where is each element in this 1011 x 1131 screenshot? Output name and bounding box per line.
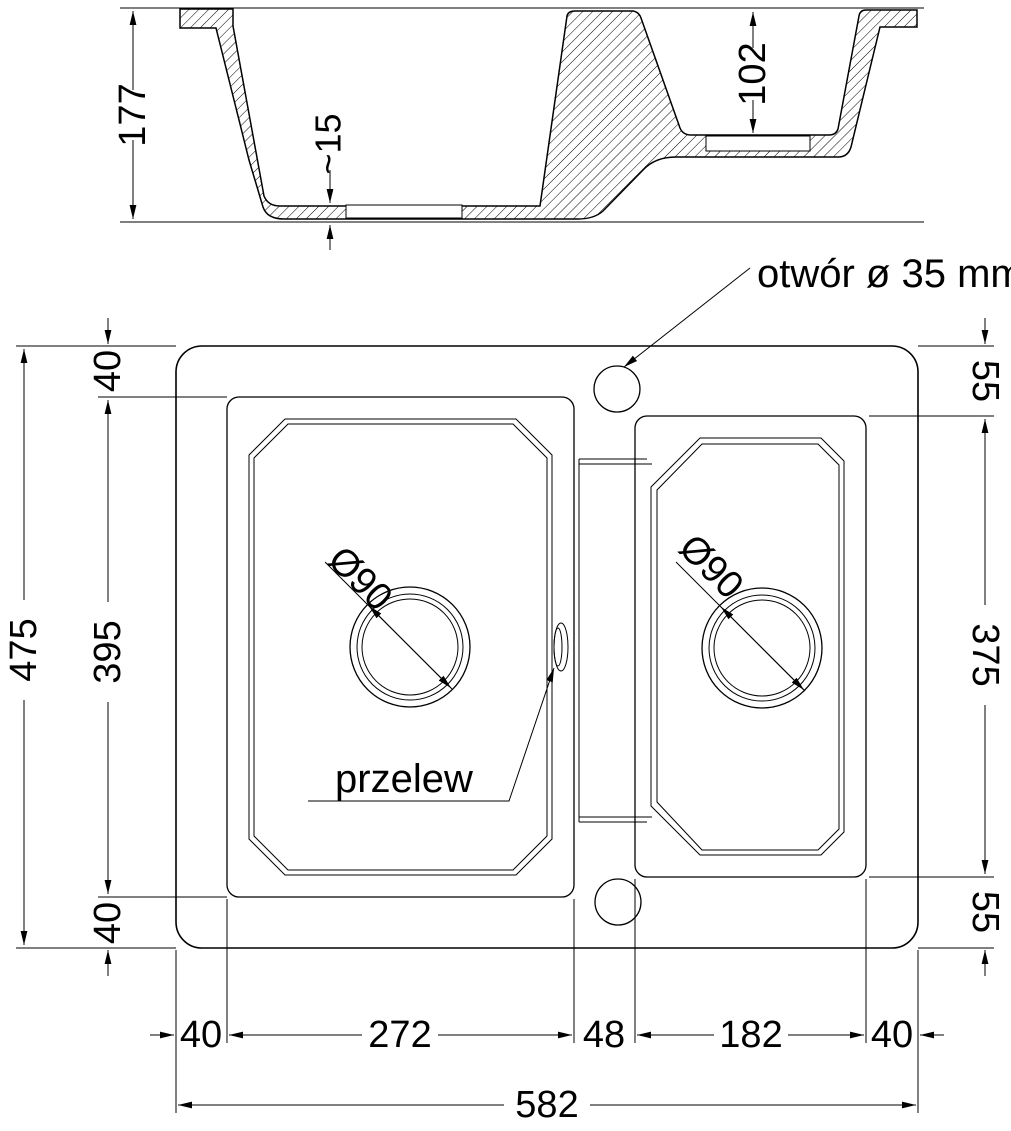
extension-lines [16,346,994,1113]
dim-offset-top-right: 55 [964,360,1006,402]
right-bowl-outer-rim [635,416,866,877]
left-bowl [227,397,574,897]
left-bowl-inner-rim-1 [249,419,552,875]
tap-hole-leader-line [624,268,750,367]
right-drain-dimension: Ø90 [671,527,805,691]
divider-weir [579,459,652,822]
cross-section-view: 177 ~15 102 [112,8,924,250]
dim-margin-left: 40 [180,1014,222,1056]
bottom-accessory-hole [595,879,641,925]
section-material [180,9,917,219]
bottom-dimensions: 40 272 48 182 40 582 [150,1014,944,1126]
left-bowl-drain-recess [346,205,462,218]
left-drain-dimension: Ø90 [320,539,452,689]
dim-overall-width: 582 [515,1084,578,1126]
dim-small-bowl-depth: 102 [732,42,774,105]
dim-margin-right: 40 [871,1014,913,1056]
top-view: otwór ø 35 mm przelew Ø90 Ø90 [3,252,1011,1126]
dim-left-drain: Ø90 [320,539,400,619]
overflow-slot [554,623,568,671]
sink-technical-drawing: 177 ~15 102 [0,0,1011,1131]
dim-overall-depth: 177 [112,83,154,146]
dim-overall-height: 475 [3,618,45,681]
right-bowl-drain-recess [706,136,810,151]
left-bowl-inner-rim-2 [254,424,547,870]
dim-right-drain: Ø90 [671,527,751,607]
tap-hole [594,366,640,412]
right-bowl-inner-rim-2 [657,444,839,850]
left-bowl-outer-rim [227,397,574,897]
right-bowl [635,416,866,877]
dim-right-bowl-height: 375 [964,623,1006,686]
dim-offset-bottom-right: 55 [964,891,1006,933]
dim-bottom-recess: ~15 [308,113,349,174]
overflow-label: przelew [335,757,473,801]
dim-left-bowl-width: 272 [368,1014,431,1056]
dim-divider-width: 48 [583,1014,625,1056]
dim-right-bowl-width: 182 [719,1014,782,1056]
left-dimensions: 475 395 40 40 [3,318,129,976]
tap-hole-label: otwór ø 35 mm [757,252,1011,296]
dim-offset-top-left: 40 [87,350,129,392]
dim-offset-bottom-left: 40 [87,902,129,944]
dim-left-bowl-height: 395 [87,620,129,683]
